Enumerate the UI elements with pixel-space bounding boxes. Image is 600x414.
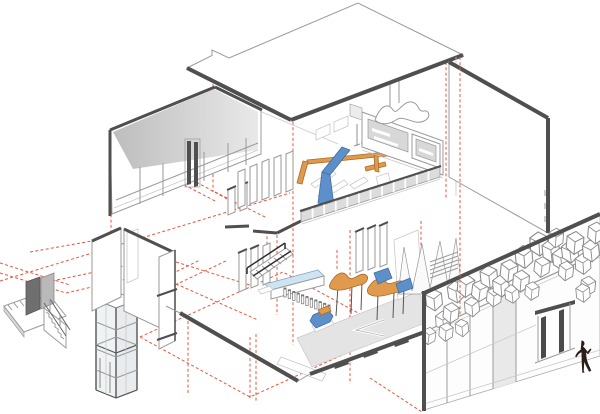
shaded-bay — [493, 291, 516, 389]
slab-edge-left — [180, 313, 298, 381]
turnstile-post — [301, 294, 304, 303]
exploded-stair — [4, 273, 70, 348]
turnstile-post — [292, 291, 295, 300]
door-leaf — [127, 229, 138, 283]
ground-floor — [166, 222, 461, 381]
stair-screen-gray — [41, 273, 54, 309]
turnstile-post — [314, 300, 317, 309]
turnstile-post — [284, 288, 287, 297]
turnstile-post — [297, 293, 300, 302]
back-windows — [316, 116, 367, 146]
door-leaf — [541, 316, 546, 359]
turnstile-post — [310, 298, 313, 307]
architectural-diagram — [0, 0, 600, 414]
door-leaf — [559, 309, 564, 353]
hanging-wave-sculpture — [375, 81, 429, 124]
right-wall-panel — [449, 62, 548, 233]
door-dark-leaf — [187, 141, 191, 185]
turnstile-post — [306, 296, 309, 305]
turnstile-post — [288, 289, 291, 298]
hexagon-facade — [421, 214, 600, 411]
diagram-canvas — [0, 0, 600, 414]
stair-screen-dark — [26, 277, 40, 315]
